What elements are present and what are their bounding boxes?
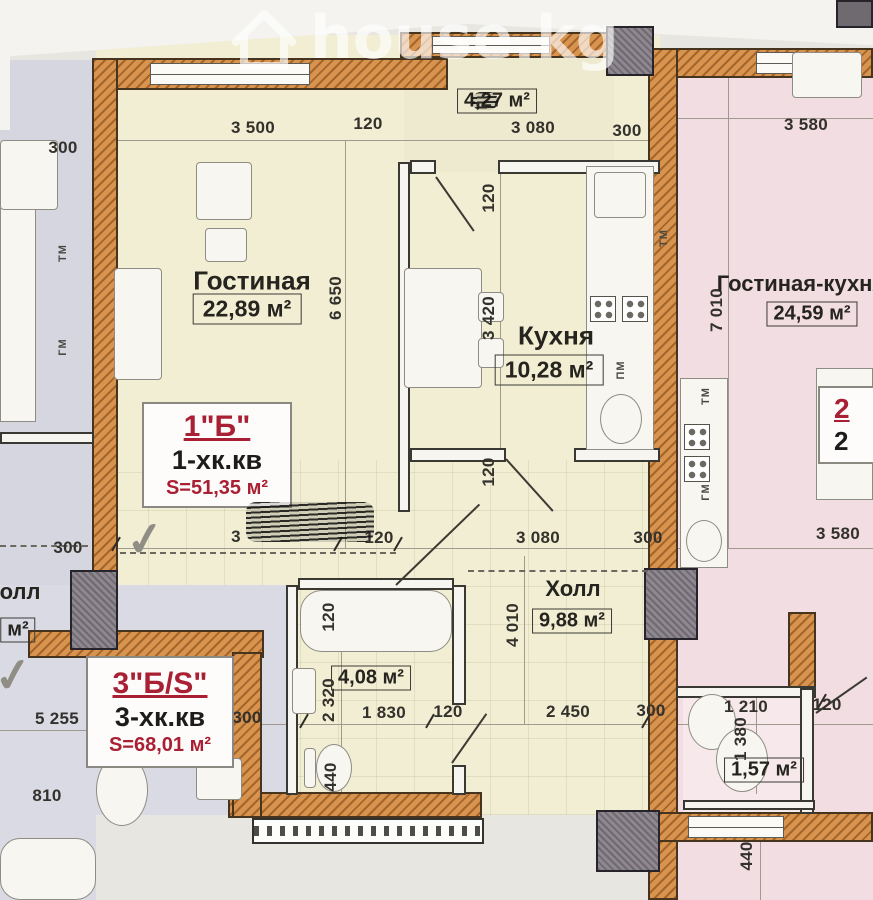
pen-scribble: [246, 502, 374, 542]
window-bottom-right: [688, 816, 784, 838]
left-hall-label-partial: олл: [0, 579, 40, 605]
dim-line: [230, 724, 873, 725]
dim-label: 300: [633, 528, 662, 548]
column-bottom: [596, 810, 660, 872]
dim-label: 5 255: [35, 709, 79, 729]
floor-plan: 300 3 500 120 3 080 300 3 580 6 650 120 …: [0, 0, 873, 900]
dim-label: 6 650: [326, 276, 346, 320]
living-kitchen-area: 24,59 м²: [766, 302, 857, 327]
railing-bottom: [252, 818, 484, 844]
wall-bathroom-bottom: [228, 792, 482, 818]
dim-line: [524, 556, 525, 724]
toilet-tank: [304, 748, 316, 788]
apartment2-name: 2: [834, 393, 850, 425]
dim-label: 120: [479, 183, 499, 212]
apartment1-area: S=51,35 м²: [144, 477, 290, 500]
living-kitchen-label: Гостиная-кухня: [717, 271, 873, 297]
wall-apt3-top: [28, 630, 264, 658]
apartment3-area: S=68,01 м²: [88, 734, 232, 757]
house-icon: [228, 2, 300, 74]
living-room-label: Гостиная: [193, 266, 311, 297]
apartment1-info-box: 1"Б" 1-хк.кв S=51,35 м²: [142, 402, 292, 508]
wc-right-area: 1,57 м²: [724, 758, 804, 783]
photo-corner-dark: [836, 0, 873, 28]
sofa: [114, 268, 162, 380]
dim-label: 120: [353, 114, 382, 134]
dim-label: 3 580: [816, 524, 860, 544]
bathroom-area: 4,08 м²: [331, 666, 411, 691]
partition-bath-right-b: [452, 765, 466, 795]
dim-label: 120: [319, 602, 339, 631]
apartment3-info-box: 3"Б/S" 3-хк.кв S=68,01 м²: [86, 656, 234, 768]
dim-line: [0, 730, 96, 731]
dim-line: [728, 78, 729, 548]
partition-kitchen-balcony-a: [410, 160, 436, 174]
dim-label: 300: [48, 138, 77, 158]
apartment1-type: 1-хк.кв: [144, 445, 290, 476]
appliance-label: ТМ: [57, 244, 69, 262]
stove-burners-icon: [590, 296, 616, 322]
appliance-label: ТМ: [700, 387, 712, 405]
dim-label: 2 450: [546, 702, 590, 722]
dim-label-scribbled: 3: [231, 527, 241, 547]
hall-label: Холл: [545, 576, 600, 602]
partition-pink-bath-bottom: [683, 800, 815, 810]
dim-line: [96, 548, 873, 549]
hall-area: 9,88 м²: [532, 609, 612, 634]
dim-label: 120: [479, 457, 499, 486]
kitchen-label: Кухня: [518, 321, 594, 352]
dim-line: [96, 140, 656, 141]
dim-label: 120: [812, 695, 841, 715]
partition-bath-top: [298, 578, 454, 590]
stove-burners-icon: [622, 296, 648, 322]
dim-label: 1 210: [724, 697, 768, 717]
stove-burners-icon: [684, 456, 710, 482]
dim-label: 3 420: [479, 296, 499, 340]
dim-line: [345, 140, 346, 548]
dim-label: 3 080: [511, 118, 555, 138]
apartment1-name: 1"Б": [144, 410, 290, 444]
armchair: [196, 162, 252, 220]
pink-kitchen-sink: [686, 520, 722, 562]
left-bathtub: [0, 838, 96, 900]
apartment2-type: 2: [834, 426, 848, 457]
wall-pink-bath: [788, 612, 816, 694]
opening-hall: [468, 570, 648, 572]
dim-label: 440: [321, 762, 341, 791]
dishwasher-label: ПМ: [615, 360, 627, 379]
appliance-label: ГМ: [700, 483, 712, 500]
dim-label: 1 380: [731, 717, 751, 761]
dim-label: 1 830: [362, 703, 406, 723]
dim-label: 440: [737, 841, 757, 870]
dim-label: 300: [53, 538, 82, 558]
column-left-mid: [70, 570, 118, 650]
apartment3-name: 3"Б/S": [88, 667, 232, 701]
appliance-label: ГМ: [57, 338, 69, 355]
left-hall-area-partial: м²: [0, 618, 35, 643]
fridge: [594, 172, 646, 218]
pen-checkmark: ✓: [122, 510, 168, 569]
partition-bath-right-a: [452, 585, 466, 705]
dim-label: 300: [612, 121, 641, 141]
watermark-text: house.kg: [310, 3, 619, 73]
watermark: house.kg: [228, 2, 619, 74]
washbasin: [292, 668, 316, 714]
dim-label: 120: [433, 702, 462, 722]
stove-burners-icon: [684, 424, 710, 450]
column-hall-right: [644, 568, 698, 640]
apartment2-info-box-partial: 2 2: [818, 386, 873, 464]
dim-label: 4 010: [503, 603, 523, 647]
pink-top-cabinet: [792, 52, 862, 98]
partition-left-apt: [0, 432, 94, 444]
appliance-label: ТМ: [658, 229, 670, 247]
dim-line: [660, 118, 873, 119]
dim-label: 810: [32, 786, 61, 806]
kitchen-sink: [600, 394, 642, 444]
paper-left-margin: [0, 0, 10, 130]
dim-label: 3 080: [516, 528, 560, 548]
dim-label: 300: [636, 701, 665, 721]
dim-label: 300: [232, 708, 261, 728]
coffee-table: [205, 228, 247, 262]
dining-table: [404, 268, 482, 388]
apartment3-type: 3-хк.кв: [88, 702, 232, 733]
living-room-area: 22,89 м²: [193, 294, 302, 325]
dim-label: 3 580: [784, 115, 828, 135]
partition-kitchen-hall-b: [574, 448, 660, 462]
pen-scribble-small: [472, 92, 498, 110]
dim-label: 3 500: [231, 118, 275, 138]
kitchen-area: 10,28 м²: [495, 355, 604, 386]
left-kitchen-counter: [0, 208, 36, 422]
